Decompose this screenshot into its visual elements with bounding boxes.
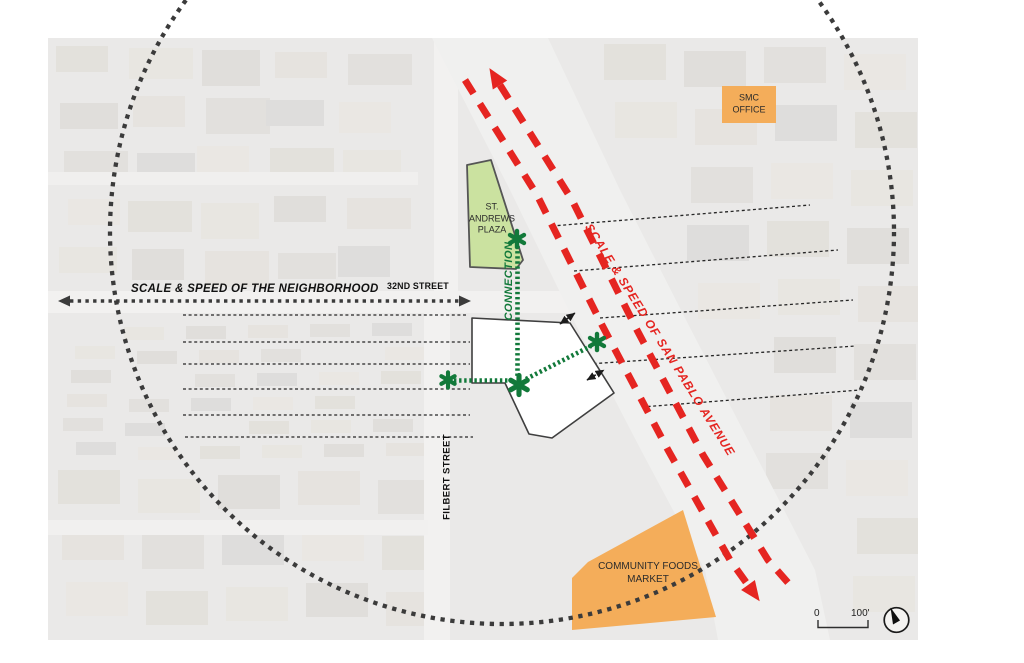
- neighborhood-axis-label: SCALE & SPEED OF THE NEIGHBORHOOD: [131, 283, 379, 295]
- smc-office-label: SMC OFFICE: [733, 92, 766, 115]
- connection-label: CONNECTION: [503, 242, 515, 321]
- scale-bar-hundred-label: 100': [851, 608, 870, 619]
- north-arrow-icon: [884, 608, 909, 633]
- diagram-graphics: [0, 0, 1024, 663]
- st-andrews-plaza-label: ST. ANDREWS PLAZA: [469, 201, 515, 236]
- street-label-32nd: 32ND STREET: [387, 281, 449, 291]
- street-label-filbert: FILBERT STREET: [442, 434, 453, 520]
- site-analysis-diagram: SCALE & SPEED OF THE NEIGHBORHOOD 32ND S…: [0, 0, 1024, 663]
- scale-bar-zero-label: 0: [814, 608, 820, 619]
- community-foods-market-label: COMMUNITY FOODS MARKET: [598, 560, 698, 586]
